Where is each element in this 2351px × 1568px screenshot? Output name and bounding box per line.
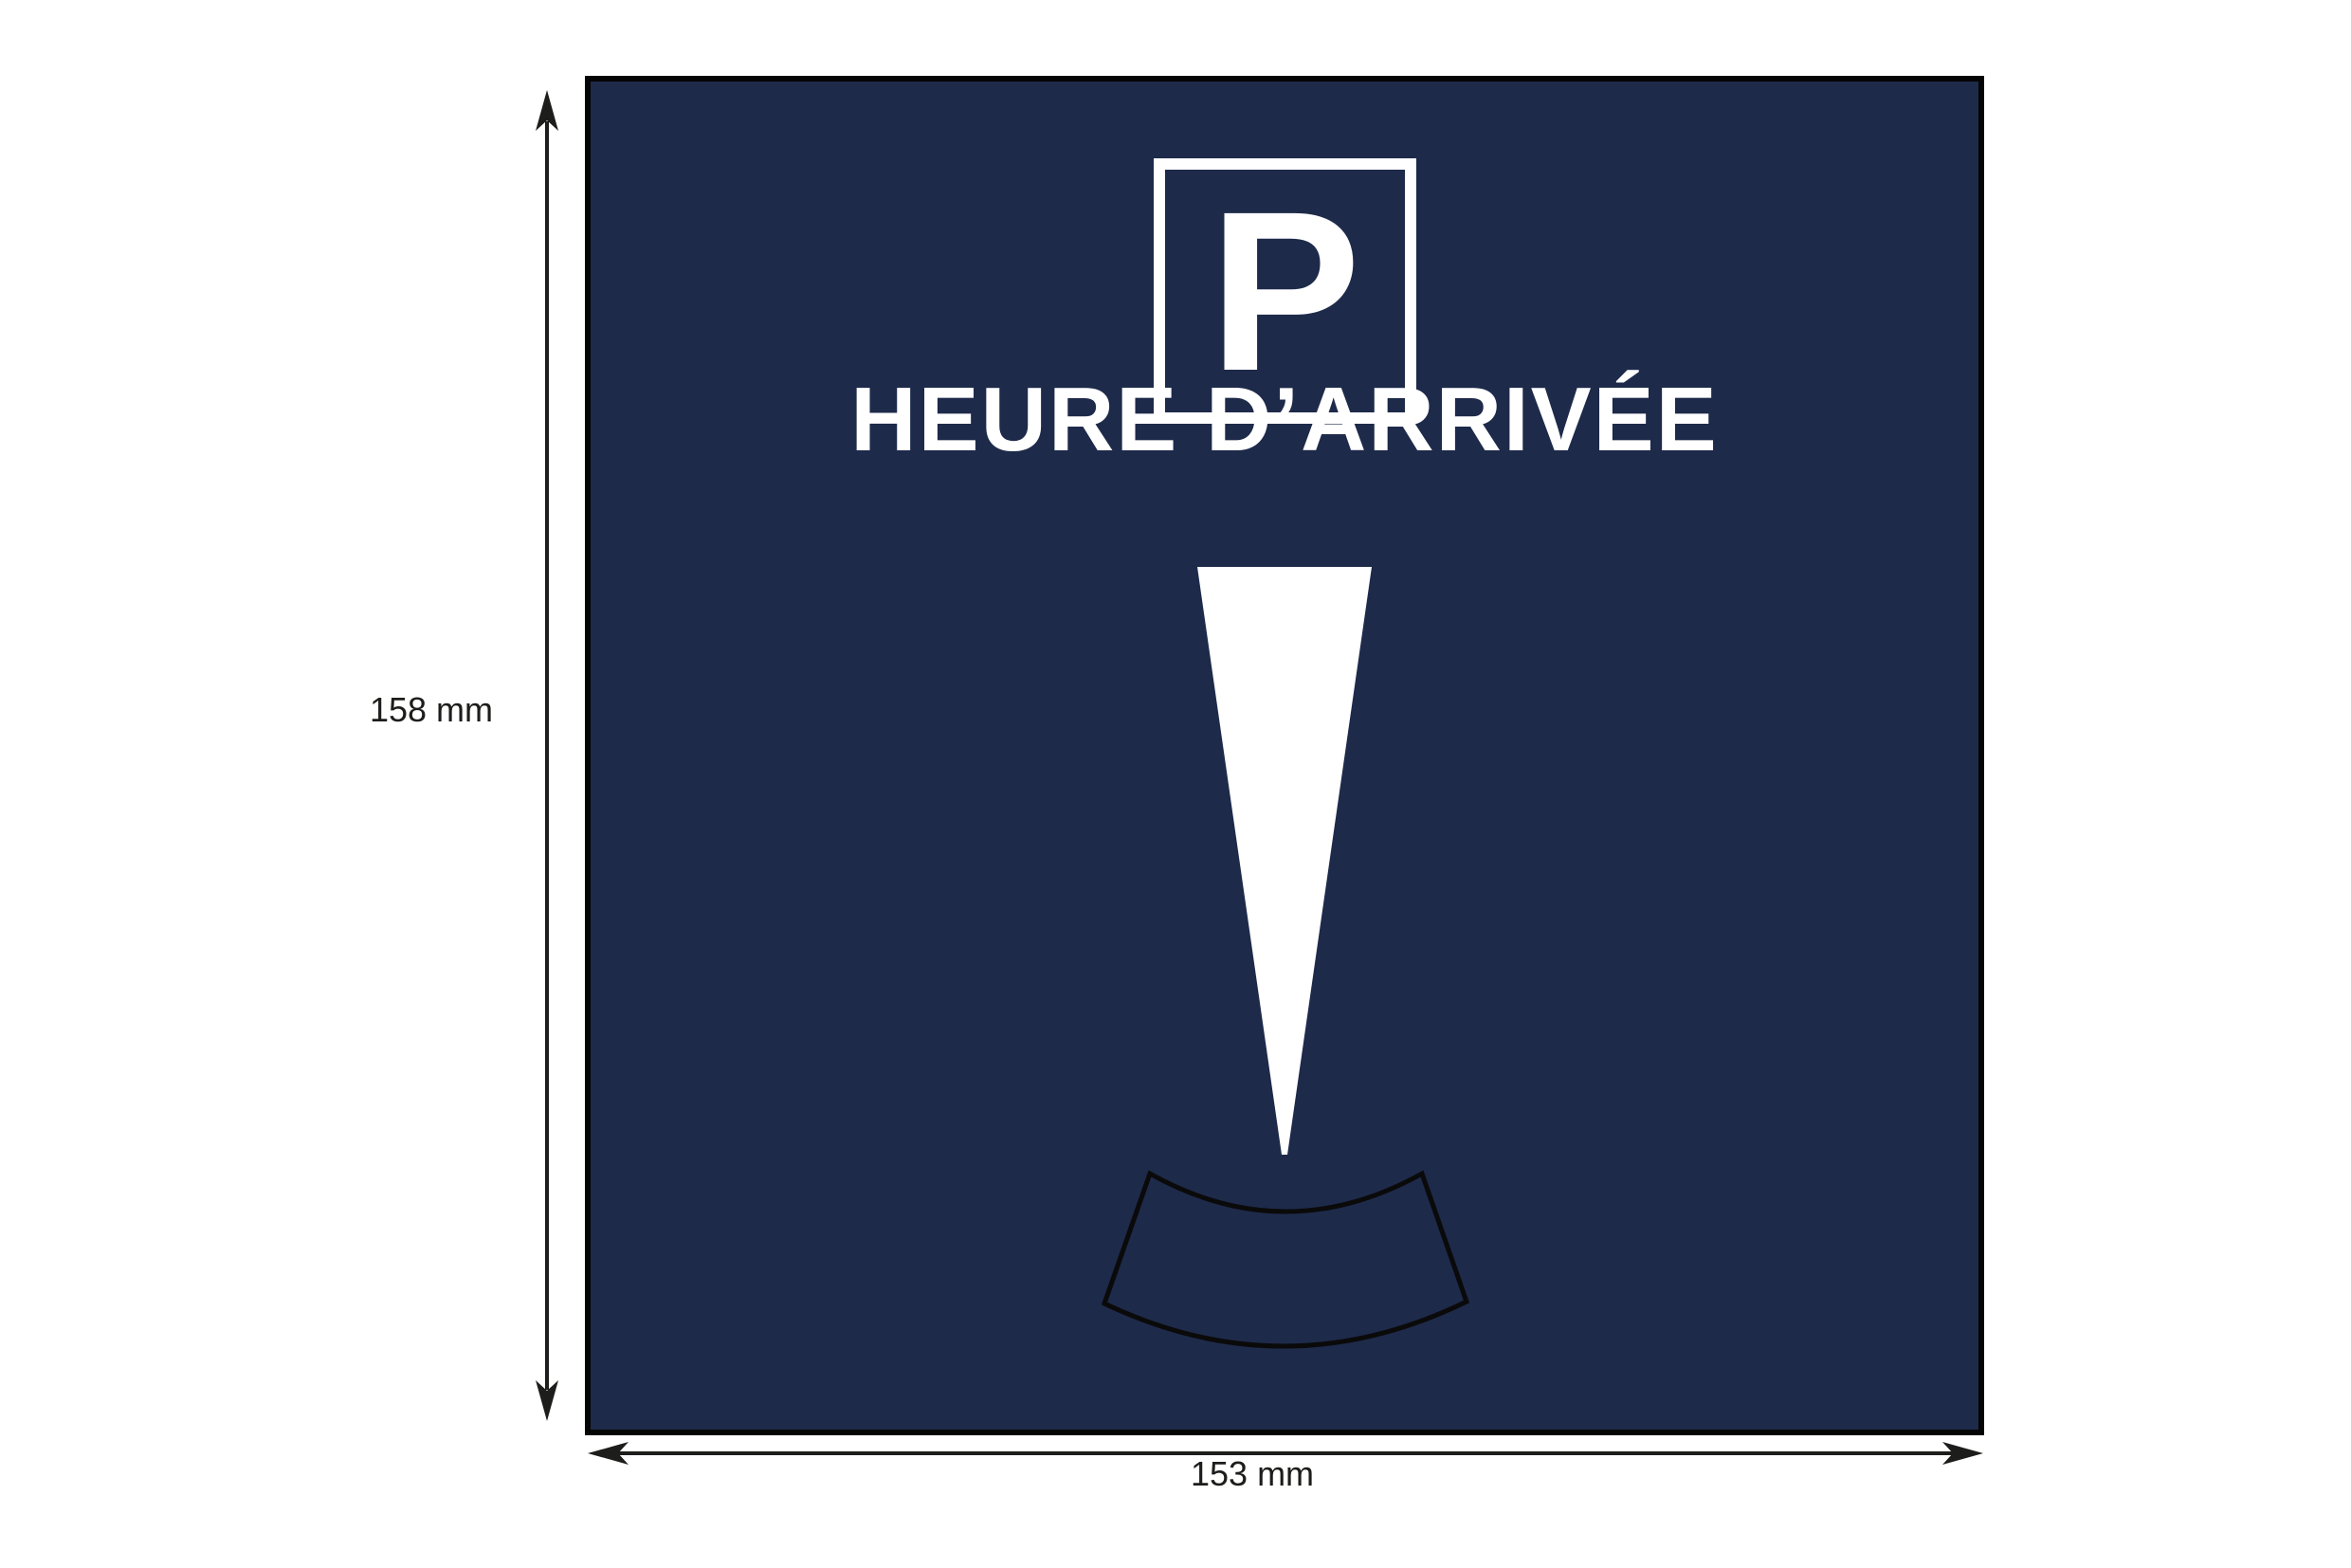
height-dimension-arrow <box>536 90 558 1421</box>
time-window-outline <box>1104 1174 1467 1346</box>
diagram-canvas: 158 mm 153 mm P HEURE D’ARRIVÉE <box>0 0 2351 1568</box>
width-dimension-label: 153 mm <box>1191 1457 1314 1491</box>
height-dimension-label: 158 mm <box>322 693 493 727</box>
parking-disc-card: P HEURE D’ARRIVÉE <box>585 76 1984 1435</box>
disc-graphics-layer <box>591 82 1978 1430</box>
time-pointer-triangle <box>1197 567 1372 1155</box>
